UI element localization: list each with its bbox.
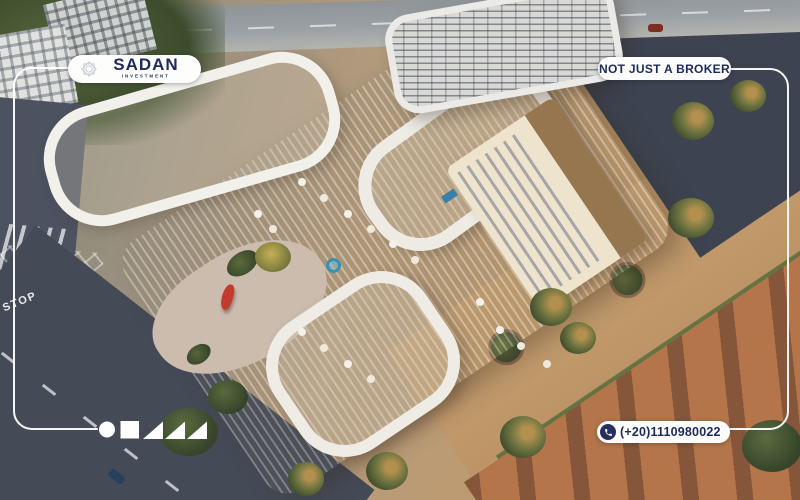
- car: [648, 24, 663, 32]
- brand-text-block: SADAN INVESTMENT: [103, 56, 189, 82]
- phone-number: (+20)1110980022: [620, 425, 721, 439]
- plaza-planter: [182, 339, 214, 368]
- spiral-slide: [326, 258, 341, 273]
- tree: [255, 242, 291, 272]
- tagline-text: NOT JUST A BROKER: [599, 62, 730, 76]
- palm-tree: [366, 452, 408, 490]
- terrace-umbrellas: [0, 0, 4, 4]
- tree: [742, 420, 800, 472]
- tree: [208, 380, 248, 414]
- brand-logo: SADAN INVESTMENT: [68, 55, 201, 83]
- palm-tree: [288, 462, 324, 496]
- tagline-badge: NOT JUST A BROKER: [598, 57, 731, 80]
- palm-tree: [560, 322, 596, 354]
- brand-subtitle: INVESTMENT: [122, 74, 170, 78]
- palm-tree: [530, 288, 572, 326]
- palm-tree: [668, 198, 714, 238]
- brand-name: SADAN: [113, 56, 178, 73]
- palm-tree: [730, 80, 766, 112]
- palm-tree: [672, 102, 714, 140]
- geometric-rosette-icon: [80, 60, 98, 78]
- hero-banner: STOP: [0, 0, 800, 500]
- palm-tree: [500, 416, 546, 458]
- phone-badge-pill[interactable]: (+20)1110980022: [597, 421, 730, 443]
- tree: [160, 408, 218, 456]
- phone-icon: [600, 424, 616, 440]
